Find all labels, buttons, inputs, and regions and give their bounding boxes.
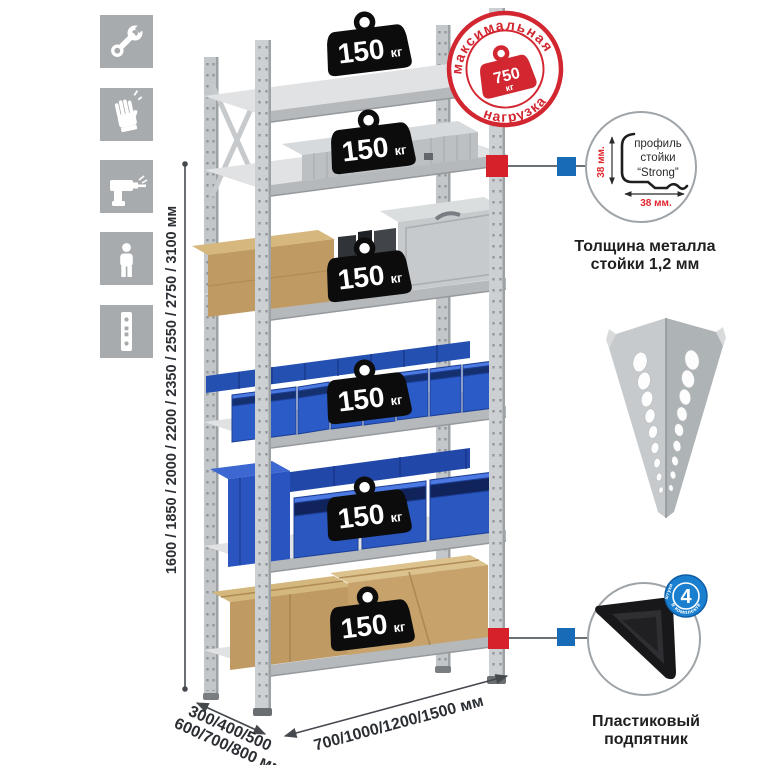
blue-marker-square (557, 157, 576, 176)
badge-unit: кг (390, 509, 404, 525)
upright-post-icon (100, 305, 153, 358)
rack-foot (435, 666, 451, 673)
product-infographic: 1600 / 1850 / 2000 / 2200 / 2350 / 2550 … (0, 0, 765, 765)
badge-value: 150 (339, 608, 389, 644)
foot-callout-circle: 4 в комплекте штуки (588, 575, 707, 695)
height-dimension: 1600 / 1850 / 2000 / 2200 / 2350 / 2550 … (164, 164, 185, 689)
blue-marker-square (557, 628, 575, 646)
callout-marker-top (486, 155, 588, 177)
wrench-icon (100, 15, 153, 68)
rack-foot (203, 693, 219, 700)
badge-unit: кг (390, 392, 404, 408)
badge-value: 150 (336, 259, 386, 295)
badge-value: 150 (336, 498, 386, 534)
illustration-canvas: 1600 / 1850 / 2000 / 2200 / 2350 / 2550 … (0, 0, 765, 765)
profile-dim-vertical: 38 мм. (596, 146, 607, 178)
weight-badge-1: 150 кг (322, 9, 413, 77)
gloves-icon (100, 88, 153, 141)
drill-icon (100, 160, 153, 213)
width-dimension-label: 700/1000/1200/1500 мм (312, 693, 485, 755)
badge-value: 150 (336, 381, 386, 417)
rack-foot (253, 708, 272, 716)
foot-caption-line2: подпятник (604, 731, 689, 748)
badge-unit: кг (394, 142, 408, 158)
callout-marker-bottom (488, 628, 592, 649)
width-dimension: 700/1000/1200/1500 мм (285, 676, 507, 755)
badge-unit: кг (390, 44, 404, 60)
badge-unit: кг (393, 619, 407, 635)
person-icon (100, 232, 153, 285)
profile-label-1: профиль (634, 138, 682, 150)
foot-caption: Пластиковый подпятник (592, 713, 700, 748)
height-dimension-label: 1600 / 1850 / 2000 / 2200 / 2350 / 2550 … (164, 206, 180, 574)
foot-caption-line1: Пластиковый (592, 713, 700, 730)
profile-label-2: стойки (640, 152, 675, 164)
profile-label-3: “Strong” (637, 167, 679, 179)
depth-dimension: 300/400/500 600/700/800 мм (171, 700, 292, 765)
corner-profile-image (606, 318, 726, 518)
badge-value: 150 (340, 131, 390, 167)
badge-value: 150 (336, 33, 386, 69)
included-count-value: 4 (680, 586, 692, 608)
sidebar-icon-tiles (100, 15, 153, 358)
profile-callout-circle: профиль стойки “Strong” 38 мм. 38 мм. (586, 112, 696, 222)
badge-unit: кг (390, 270, 404, 286)
weight-badge-2: 150 кг (326, 107, 417, 175)
max-load-stamp: максимальная нагрузка 750 кг (437, 1, 573, 137)
thickness-caption-line2: стойки 1,2 мм (591, 256, 700, 273)
red-marker-square (486, 155, 508, 177)
red-marker-square (488, 628, 509, 649)
thickness-caption-line1: Толщина металла (574, 238, 715, 255)
profile-dim-horizontal: 38 мм. (640, 198, 672, 209)
metal-thickness-caption: Толщина металла стойки 1,2 мм (574, 238, 715, 273)
